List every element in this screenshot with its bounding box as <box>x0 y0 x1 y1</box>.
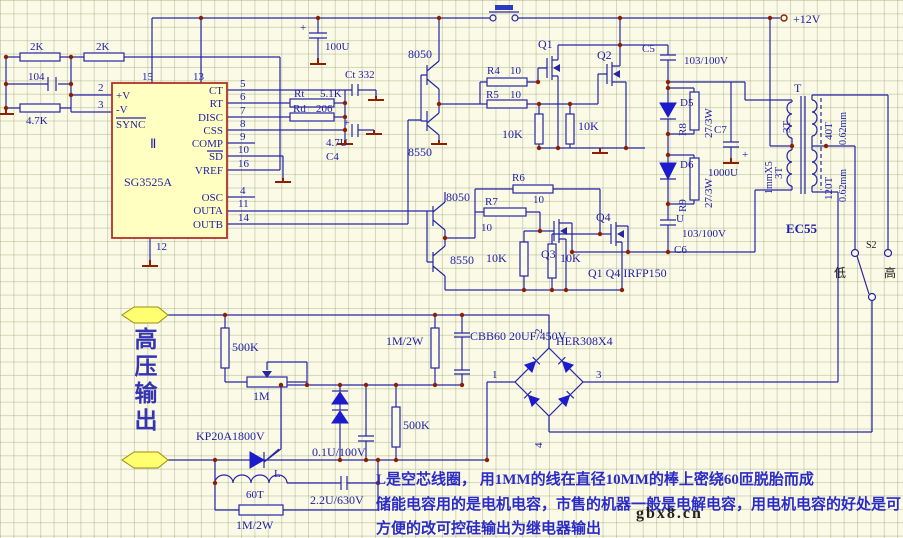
power-switch-cap <box>495 5 513 10</box>
label-r-2k-a: 2K <box>30 41 44 53</box>
label-c4-val: 4.7U <box>326 137 348 149</box>
label-10k-d: 10K <box>560 251 581 265</box>
label-vcc: +12V <box>793 12 821 26</box>
diode-stack-b <box>332 411 348 423</box>
schematic-canvas: 2K 2K 104 4.7K SG3525A Ⅱ +V -V SYNC 2 3 … <box>0 0 903 538</box>
label-8550-a: 8550 <box>408 145 432 159</box>
label-r-4k7: 4.7K <box>26 115 48 127</box>
label-bridge-n3: 3 <box>596 369 602 381</box>
resistor-r4 <box>487 78 527 86</box>
ic-pin-num-3: 3 <box>98 99 104 111</box>
resistor-10k-b <box>566 114 574 144</box>
diode-stack-a <box>332 392 348 404</box>
label-r5-val: 10 <box>510 89 522 101</box>
label-d5: D5 <box>680 97 694 109</box>
label-c5: C5 <box>642 43 655 55</box>
resistor-r5 <box>487 100 527 108</box>
ic-pin-label-pv: +V <box>116 90 130 102</box>
label-bridge-n1: 1 <box>492 369 498 381</box>
resistor-2k-b <box>84 53 124 61</box>
ic-pin-label-sd: SD <box>209 151 223 163</box>
label-r6: R6 <box>512 172 525 184</box>
label-xfmr-s1w: 0.62mm <box>838 112 849 145</box>
label-bridge-n4: 4 <box>533 442 545 448</box>
resistor-4k7 <box>20 104 60 112</box>
label-r-2k-b: 2K <box>96 41 110 53</box>
ic-pin-label-outb: OUTB <box>193 219 223 231</box>
label-r8: R8 <box>677 123 689 136</box>
q1-arrow <box>553 64 560 72</box>
ic-pin-label-outa: OUTA <box>193 205 223 217</box>
label-c01: 0.1U/100V <box>312 445 366 459</box>
label-10k-b: 10K <box>578 119 599 133</box>
ic-pin-num-10: 10 <box>238 144 250 156</box>
label-ct332: Ct 332 <box>345 69 375 81</box>
label-xfmr-s2: 120T <box>823 177 835 201</box>
label-10k-a: 10K <box>502 127 523 141</box>
ic-pin-label-osc: OSC <box>202 192 223 204</box>
resistor-2k-a <box>20 53 60 61</box>
ic-pin-label-rt: RT <box>210 98 224 110</box>
label-l-turns: 60T <box>246 489 264 501</box>
label-d6: D6 <box>680 159 694 171</box>
label-xfmr-t: T <box>794 81 802 95</box>
resistor-r6 <box>513 185 553 193</box>
ic-pin-label-nv: -V <box>116 104 128 116</box>
label-xfmr-s1: 40T <box>823 122 835 140</box>
label-switch-high: 高 <box>884 265 896 280</box>
ic-pin-label-disc: DISC <box>198 112 223 124</box>
label-r7: R7 <box>485 196 498 208</box>
ic-part-number: SG3525A <box>124 175 172 189</box>
ic-pin-num-4: 4 <box>240 185 246 197</box>
label-c7-plus: + <box>742 149 748 161</box>
ic-pin-num-16: 16 <box>238 158 250 170</box>
hv-connector-top <box>122 307 168 323</box>
ic-pin-label-vref: VREF <box>195 165 223 177</box>
q2-arrow <box>613 70 620 78</box>
label-scr: KP20A1800V <box>196 429 265 443</box>
label-c4-plus: + <box>344 118 350 129</box>
ic-pin-num-7: 7 <box>240 105 246 117</box>
ic-pin-num-9: 9 <box>240 131 246 143</box>
ic-pin-num-5: 5 <box>240 78 246 90</box>
label-switch-low: 低 <box>834 266 846 280</box>
note-line-1: L是空芯线圈， 用1MM的线在直径10MM的棒上密绕60匝脱胎而成 <box>376 470 814 488</box>
inverter-schematic: 2K 2K 104 4.7K SG3525A Ⅱ +V -V SYNC 2 3 … <box>0 0 903 538</box>
hv-output-label: 高压输出 <box>126 327 160 455</box>
label-c6-val: 103/100V <box>682 228 726 240</box>
label-q2: Q2 <box>597 48 612 62</box>
label-c100u-plus: + <box>300 22 306 34</box>
label-c22: 2.2U/630V <box>310 493 364 507</box>
label-cbb60: CBB60 20UF/450V <box>470 329 567 343</box>
ic-pin-num-15: 15 <box>142 71 154 83</box>
ic-pin-label-comp: COMP <box>192 138 223 150</box>
label-c7-val: 1000U <box>708 167 738 179</box>
label-8550-b: 8550 <box>450 253 474 267</box>
resistor-500k-b <box>392 407 400 447</box>
label-10k-c: 10K <box>486 251 507 265</box>
label-c-104: 104 <box>28 71 45 83</box>
label-pot-1m: 1M <box>253 389 270 403</box>
ic-pin-num-12: 12 <box>156 241 167 253</box>
power-switch <box>489 5 519 21</box>
resistor-500k-a <box>221 328 229 368</box>
label-r4-val: 10 <box>510 65 522 77</box>
label-xfmr-s2w: 0.62mm <box>838 169 849 202</box>
resistor-1m2w-bottom <box>239 505 283 515</box>
resistor-10k-a <box>535 114 543 144</box>
label-xfmr-pw: 1mmX5 <box>764 161 775 194</box>
label-1m2w-a: 1M/2W <box>236 518 274 532</box>
ic-pin-num-14: 14 <box>238 212 250 224</box>
ic-pin-label-css: CSS <box>203 125 223 137</box>
diode-d5 <box>660 103 676 117</box>
label-rt-val: 5.1K <box>320 88 342 100</box>
label-rd-val: 206 <box>316 103 333 115</box>
label-1m2w-b: 1M/2W <box>386 334 424 348</box>
label-r6-val: 10 <box>533 194 545 206</box>
note-line-3: 方便的改可控硅输出为继电器输出 <box>376 519 601 537</box>
vcc-terminal <box>781 15 787 21</box>
watermark: gbx8.cn <box>636 505 703 522</box>
label-c5-val: 103/100V <box>684 55 728 67</box>
label-r4: R4 <box>487 65 500 77</box>
label-500k-a: 500K <box>232 340 259 354</box>
resistor-r7 <box>484 208 526 216</box>
thyristor-kp20a <box>250 452 264 468</box>
label-u: U <box>676 213 684 225</box>
q4-arrow <box>617 230 624 238</box>
label-bridge-n2: 2 <box>533 329 545 335</box>
label-q3: Q3 <box>541 247 556 261</box>
label-q1: Q1 <box>538 37 553 51</box>
ic-pin-label-sync: SYNC <box>116 119 145 131</box>
label-xfmr-core: EC55 <box>786 221 818 236</box>
resistor-1m2w-mid <box>431 328 439 368</box>
diodes <box>250 103 676 468</box>
label-r7-val: 10 <box>481 222 493 234</box>
ic-pin-num-6: 6 <box>240 91 246 103</box>
ic-pin-num-11: 11 <box>238 198 249 210</box>
ic-pin-label-ct: CT <box>209 85 223 97</box>
diode-d6 <box>660 163 676 179</box>
ic-pin-num-13: 13 <box>193 71 205 83</box>
label-bridge: HER308X4 <box>556 334 613 348</box>
label-l: L <box>274 468 281 480</box>
label-mosfet-note: Q1 Q4 IRFP150 <box>588 266 667 280</box>
label-q4: Q4 <box>596 210 611 224</box>
label-xfmr-p1: 3T <box>781 121 793 134</box>
label-rd: Rd <box>293 103 306 115</box>
label-8050-a: 8050 <box>408 47 432 61</box>
label-c100u: 100U <box>325 41 350 53</box>
label-8050-b: 8050 <box>446 190 470 204</box>
label-r9-val: 27/3W <box>703 177 715 208</box>
label-switch-s: S2 <box>866 240 877 251</box>
label-c6: C6 <box>674 244 687 256</box>
ic-pin-num-8: 8 <box>240 118 246 130</box>
ic-pin-num-2: 2 <box>98 82 104 94</box>
label-rt: Rt <box>294 88 304 100</box>
ic-designator: Ⅱ <box>150 136 156 151</box>
label-c4: C4 <box>326 151 339 163</box>
label-500k-b: 500K <box>403 418 430 432</box>
label-r9: R9 <box>677 199 689 212</box>
label-c7: C7 <box>714 124 727 136</box>
resistor-10k-c <box>520 242 528 276</box>
label-r5: R5 <box>486 89 499 101</box>
